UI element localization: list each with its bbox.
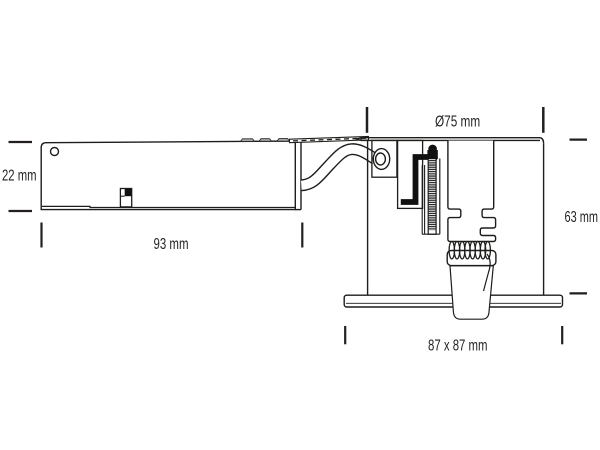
svg-text:87 x 87 mm: 87 x 87 mm [428, 337, 488, 354]
svg-text:22 mm: 22 mm [2, 168, 37, 185]
svg-text:93 mm: 93 mm [154, 236, 189, 253]
svg-text:63 mm: 63 mm [565, 209, 599, 226]
svg-text:Ø75 mm: Ø75 mm [435, 113, 480, 130]
